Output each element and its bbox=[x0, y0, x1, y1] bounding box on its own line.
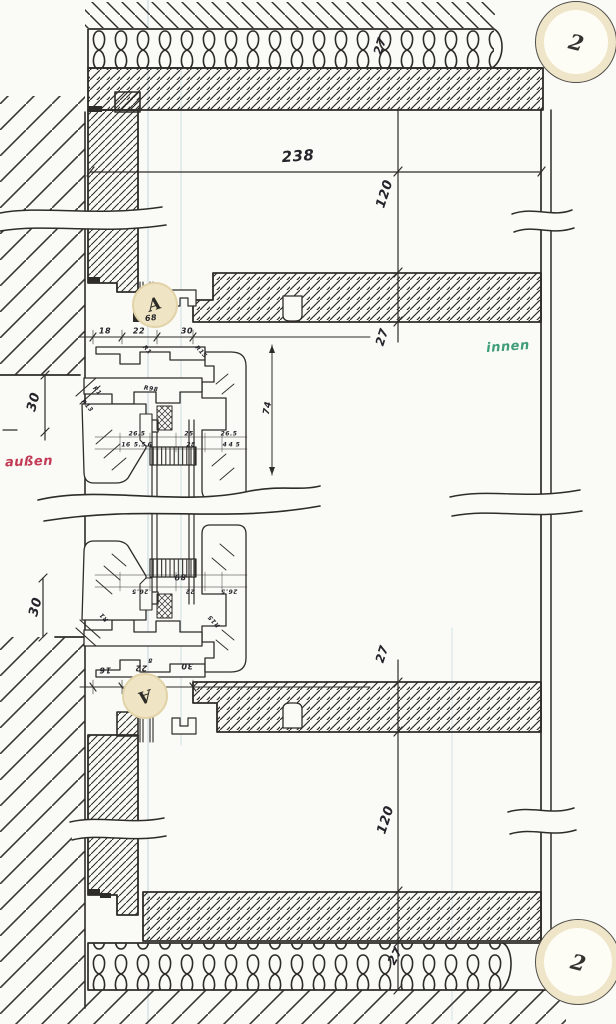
scanned-drawing-page: AA22 272381202730302712027außeninnen1822… bbox=[0, 0, 616, 1024]
technical-drawing bbox=[0, 0, 616, 1024]
